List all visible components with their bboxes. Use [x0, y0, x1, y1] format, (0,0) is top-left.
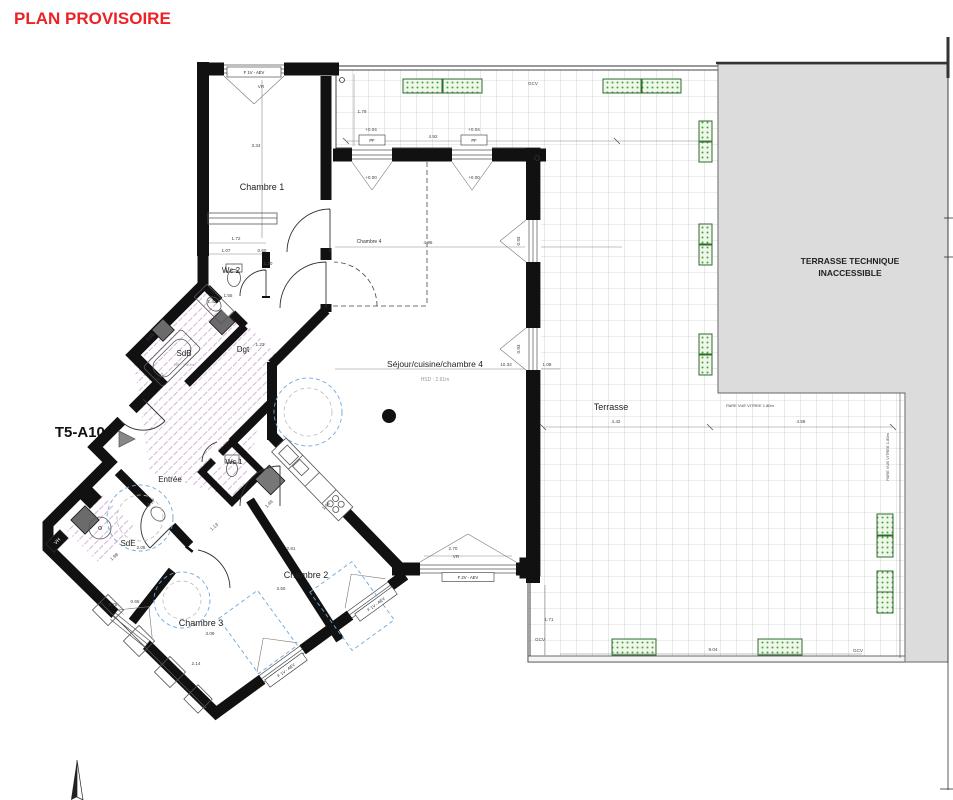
label-inaccessible: INACCESSIBLE	[818, 268, 882, 278]
label-0-04: +0.04	[468, 127, 480, 132]
chambre-4-dashed-zone	[333, 162, 427, 306]
label-0-93: 0.93	[516, 236, 521, 245]
closet-chambre-1	[208, 213, 277, 224]
label-chambre-4: Chambre 4	[357, 239, 382, 245]
label-wc-1: Wc 1	[225, 457, 242, 466]
label-9-04: 9.04	[709, 647, 718, 652]
page-title: PLAN PROVISOIRE	[14, 9, 171, 28]
label-2-81: 2.81	[287, 546, 296, 551]
label-10-32: 10.32	[500, 362, 512, 367]
label-hsd-2-61m: HSD : 2.61m	[421, 377, 450, 383]
label-gcv: GCV	[853, 648, 864, 653]
label-vr: VR	[453, 554, 460, 559]
window-tag-label-pf: PF	[359, 135, 385, 145]
label-0-60: 0.60	[258, 248, 267, 253]
entrance-arrow-icon	[119, 431, 135, 447]
label-pare-vue-vitree-1-80m: PARE VUE VITREE 1.80m	[726, 403, 774, 408]
label-2-14: 2.14	[192, 661, 201, 666]
label-chambre-2: Chambre 2	[284, 570, 329, 580]
label-0-78: 0.78	[109, 602, 118, 607]
north-arrow-icon	[71, 760, 83, 800]
label-pf: PF	[369, 138, 375, 143]
label-hp-2-50m: HP : 2.50m	[174, 362, 195, 367]
label-4-92: 4.92	[429, 134, 438, 139]
label-f-2v-aev: F 2V - AEV	[458, 575, 479, 580]
label-4-42: 4.42	[612, 419, 621, 424]
label-0-04: +0.04	[365, 127, 377, 132]
label-4-95: 4.95	[424, 240, 433, 245]
label-1-30: 1.30	[264, 261, 273, 266]
label-2-05: 2.05	[137, 545, 146, 550]
label-2-70: 2.70	[449, 546, 458, 551]
label-f-1v-aev: F 1V - AEV	[244, 70, 265, 75]
label-3-50: 3.50	[277, 586, 286, 591]
label-chambre-1: Chambre 1	[240, 182, 285, 192]
floor-plan-drawing: PLAN PROVISOIRE T5-A102 Chambre 1Wc 2SdB…	[0, 0, 953, 800]
label-chambre-3: Chambre 3	[179, 618, 224, 628]
label-1-72: 1.72	[232, 236, 241, 241]
label-4-58: 4.58	[797, 419, 806, 424]
label-3-09: 3.09	[206, 631, 215, 636]
label-1-55: 1.55	[224, 293, 233, 298]
label-1-07: 1.07	[222, 248, 231, 253]
label-dgt: Dgt	[237, 345, 250, 354]
label-1-42: 1.42	[208, 299, 217, 304]
window-tag-label-f-2v-aev: F 2V - AEV	[442, 573, 494, 582]
label-gcv: GCV	[528, 81, 539, 86]
label-0-93: 0.93	[516, 344, 521, 353]
label-terrasse-technique: TERRASSE TECHNIQUE	[801, 256, 900, 266]
label-terrasse: Terrasse	[594, 402, 629, 412]
label-gcv: GCV	[535, 637, 546, 642]
column	[382, 409, 396, 423]
label-0-00: +0.00	[468, 175, 480, 180]
label-1-08: 1.08	[543, 362, 552, 367]
terrace-rail	[528, 656, 940, 662]
label-vr: VR	[258, 84, 265, 89]
label-1-13: 1.13	[209, 522, 219, 532]
terrace-corner-post	[520, 558, 538, 578]
window-tag-label-pf: PF	[461, 135, 487, 145]
label-s-jour-cuisine-chambre-4: Séjour/cuisine/chambre 4	[387, 359, 483, 369]
label-0-00: +0.00	[365, 175, 377, 180]
unit-label: T5-A102	[55, 424, 113, 441]
label-1-79: 1.79	[358, 109, 367, 114]
label-entr-e: Entrée	[158, 475, 182, 484]
label-1-71: 1.71	[545, 617, 554, 622]
label-sdb: SdB	[176, 349, 191, 358]
planter-icon	[403, 79, 442, 93]
label-wc-2: Wc 2	[222, 266, 241, 275]
label-pare-vue-vitree-1-80m: PARE VUE VITREE 1.80m	[885, 432, 890, 480]
label-0-65: 0.65	[131, 599, 140, 604]
label-3-34: 3.34	[252, 143, 261, 148]
label-pf: PF	[471, 138, 477, 143]
window-tag-label-f-1v-aev: F 1V - AEV	[227, 67, 281, 77]
label-1-22: 1.22	[256, 342, 265, 347]
label-sde: SdE	[120, 539, 135, 548]
floor-plan-page: PLAN PROVISOIRE T5-A102 Chambre 1Wc 2SdB…	[0, 0, 953, 800]
label-1-48: 1.48	[264, 499, 274, 509]
